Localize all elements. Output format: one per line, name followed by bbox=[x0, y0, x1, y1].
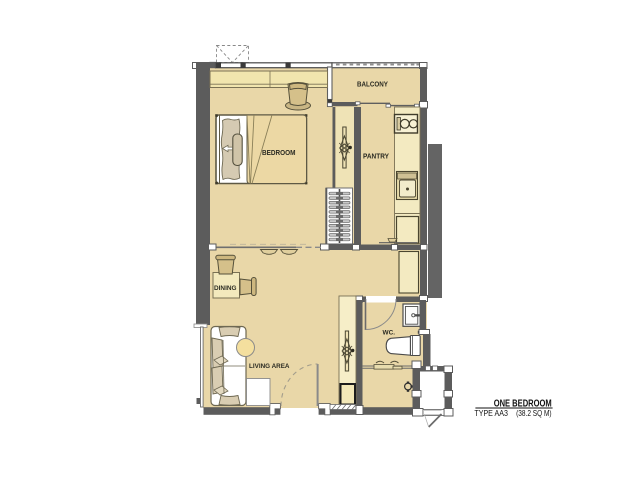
svg-text:WC.: WC. bbox=[383, 330, 396, 337]
svg-text:(38.2 SQ M): (38.2 SQ M) bbox=[516, 409, 552, 418]
svg-text:DINING: DINING bbox=[214, 285, 237, 292]
svg-text:TYPE AA3: TYPE AA3 bbox=[474, 409, 508, 418]
svg-text:LIVING AREA: LIVING AREA bbox=[249, 363, 290, 370]
svg-text:PANTRY: PANTRY bbox=[363, 152, 389, 161]
svg-text:BALCONY: BALCONY bbox=[357, 79, 388, 88]
svg-text:BEDROOM: BEDROOM bbox=[262, 148, 296, 157]
